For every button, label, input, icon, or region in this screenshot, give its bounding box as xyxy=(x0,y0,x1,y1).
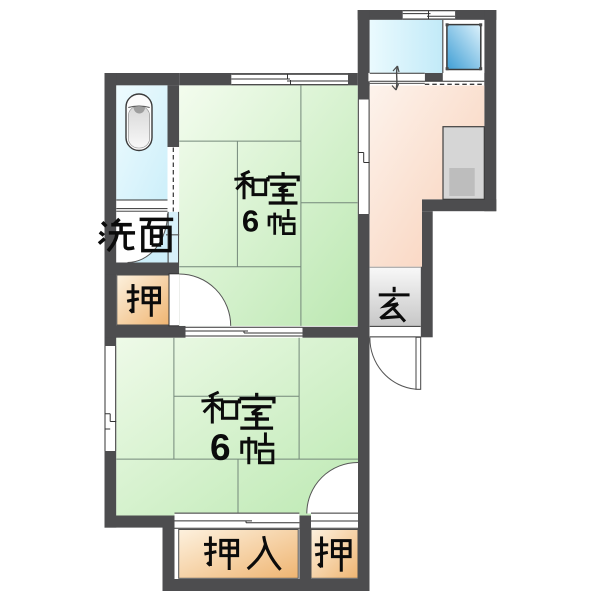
svg-text:6: 6 xyxy=(242,204,259,239)
svg-text:6: 6 xyxy=(210,427,231,468)
